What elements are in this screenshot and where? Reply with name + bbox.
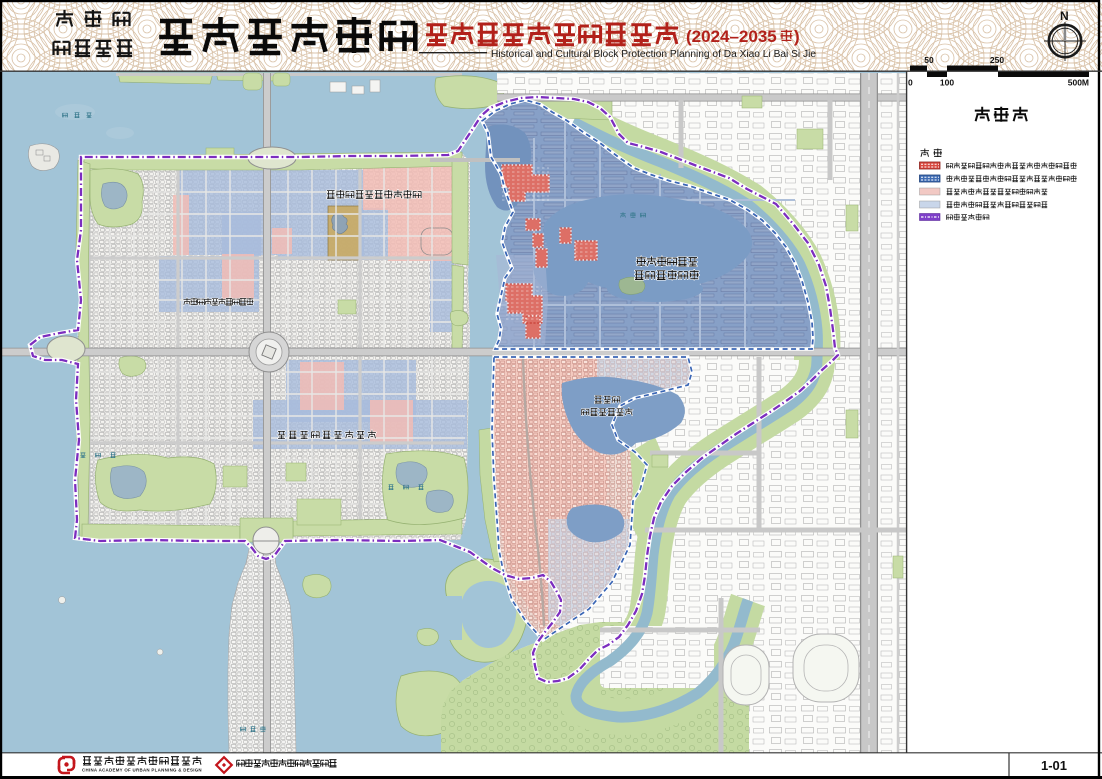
svg-text:50: 50 bbox=[924, 55, 934, 65]
svg-text:250: 250 bbox=[990, 55, 1004, 65]
svg-text:): ) bbox=[794, 27, 800, 46]
svg-text:100: 100 bbox=[940, 78, 954, 88]
svg-text:CHINA ACADEMY OF URBAN PLANNIN: CHINA ACADEMY OF URBAN PLANNING & DESIGN bbox=[82, 768, 202, 773]
svg-text:1-01: 1-01 bbox=[1041, 758, 1067, 773]
svg-text:500M: 500M bbox=[1068, 78, 1089, 88]
svg-text:Historical and Cultural Block: Historical and Cultural Block Protection… bbox=[491, 49, 816, 60]
svg-text:(2024–2035: (2024–2035 bbox=[686, 27, 777, 46]
svg-text:N: N bbox=[1060, 9, 1069, 23]
svg-text:0: 0 bbox=[908, 78, 913, 88]
